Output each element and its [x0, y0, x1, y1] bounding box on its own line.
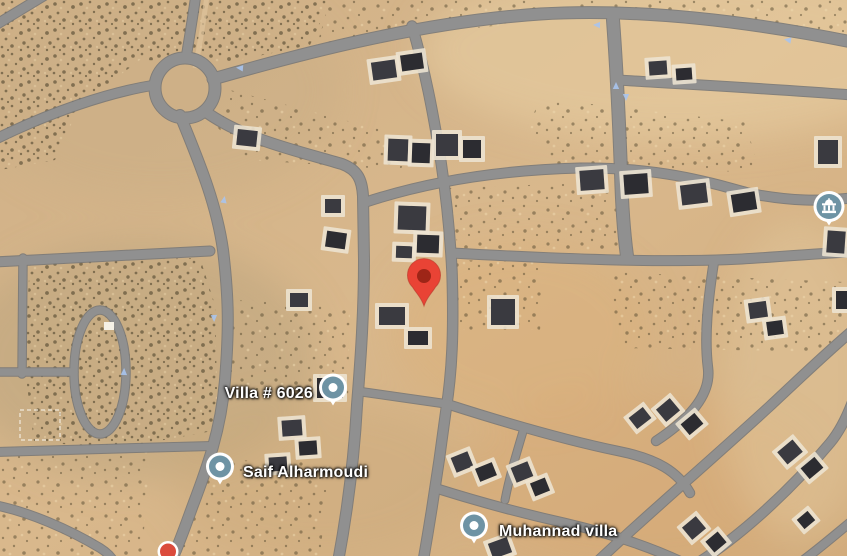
poi-pin-saif-alharmoudi[interactable] [203, 450, 237, 495]
poi-dot-icon [156, 540, 180, 556]
poi-pin-icon [203, 450, 237, 490]
satellite-map[interactable]: Villa # 6026 Saif Alharmoudi Muhannad vi… [0, 0, 847, 556]
poi-pin-muhannad-villa[interactable] [457, 509, 491, 554]
poi-label-villa-6026[interactable]: Villa # 6026 [225, 385, 313, 403]
destination-pin[interactable] [406, 258, 442, 313]
poi-pin-villa-6026[interactable] [316, 371, 350, 416]
poi-label-saif-alharmoudi[interactable]: Saif Alharmoudi [243, 464, 368, 482]
poi-pin-icon [316, 371, 350, 411]
poi-pin-red-partial[interactable] [156, 540, 180, 556]
poi-label-muhannad-villa[interactable]: Muhannad villa [499, 523, 617, 541]
poi-pin-place-of-worship[interactable] [810, 188, 847, 237]
building-icon [810, 188, 847, 232]
poi-pin-icon [457, 509, 491, 549]
map-pin-icon [406, 258, 442, 308]
